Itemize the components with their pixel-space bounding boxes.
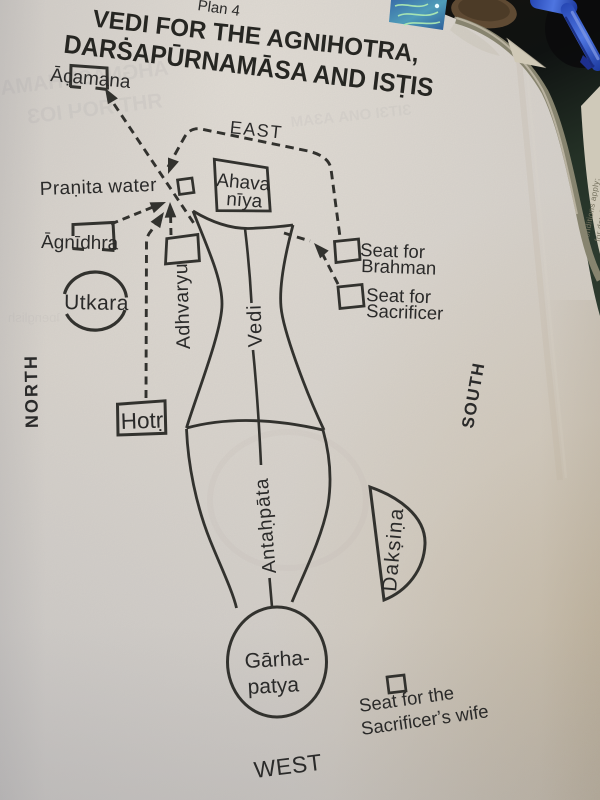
svg-text:patya: patya <box>247 673 300 699</box>
svg-text:Vedi: Vedi <box>244 304 267 348</box>
svg-text:Brahman: Brahman <box>361 255 437 279</box>
svg-text:Hotṛ: Hotṛ <box>120 408 164 434</box>
svg-text:Gārha-: Gārha- <box>244 647 310 673</box>
svg-text:Praṇita water: Praṇita water <box>39 175 157 200</box>
svg-text:Adhvaryu: Adhvaryu <box>170 262 195 349</box>
svg-text:Āgnīdhra: Āgnīdhra <box>41 232 119 254</box>
svg-text:nīya: nīya <box>226 189 264 212</box>
svg-text:Sacrificer: Sacrificer <box>366 300 444 324</box>
svg-text:Utkara: Utkara <box>64 291 129 315</box>
svg-text:NORTH: NORTH <box>21 354 42 428</box>
